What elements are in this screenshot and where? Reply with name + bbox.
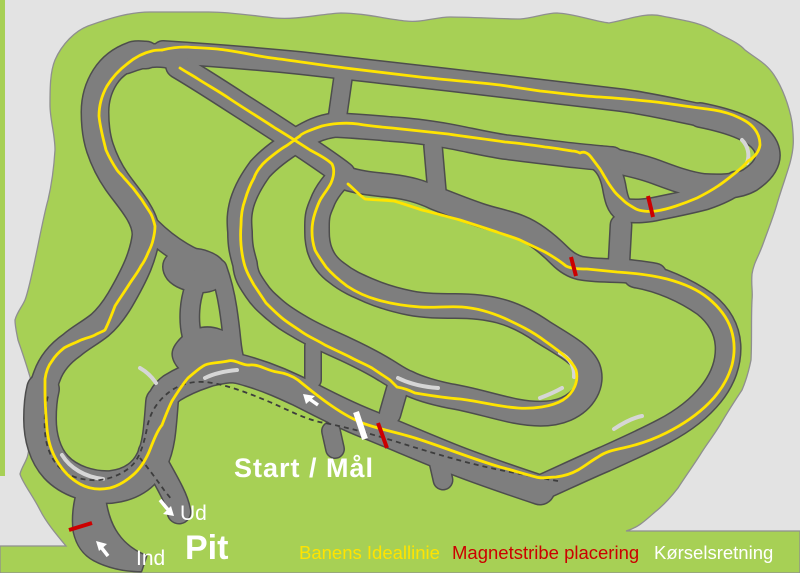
svg-text:Ind: Ind	[136, 547, 165, 570]
svg-text:Ud: Ud	[180, 502, 207, 525]
svg-text:Banens Ideallinie: Banens Ideallinie	[299, 542, 440, 563]
svg-text:Pit: Pit	[185, 529, 228, 567]
svg-text:Kørselsretning: Kørselsretning	[654, 542, 773, 563]
svg-text:Magnetstribe placering: Magnetstribe placering	[452, 542, 639, 563]
svg-text:Start / Mål: Start / Mål	[234, 453, 374, 483]
